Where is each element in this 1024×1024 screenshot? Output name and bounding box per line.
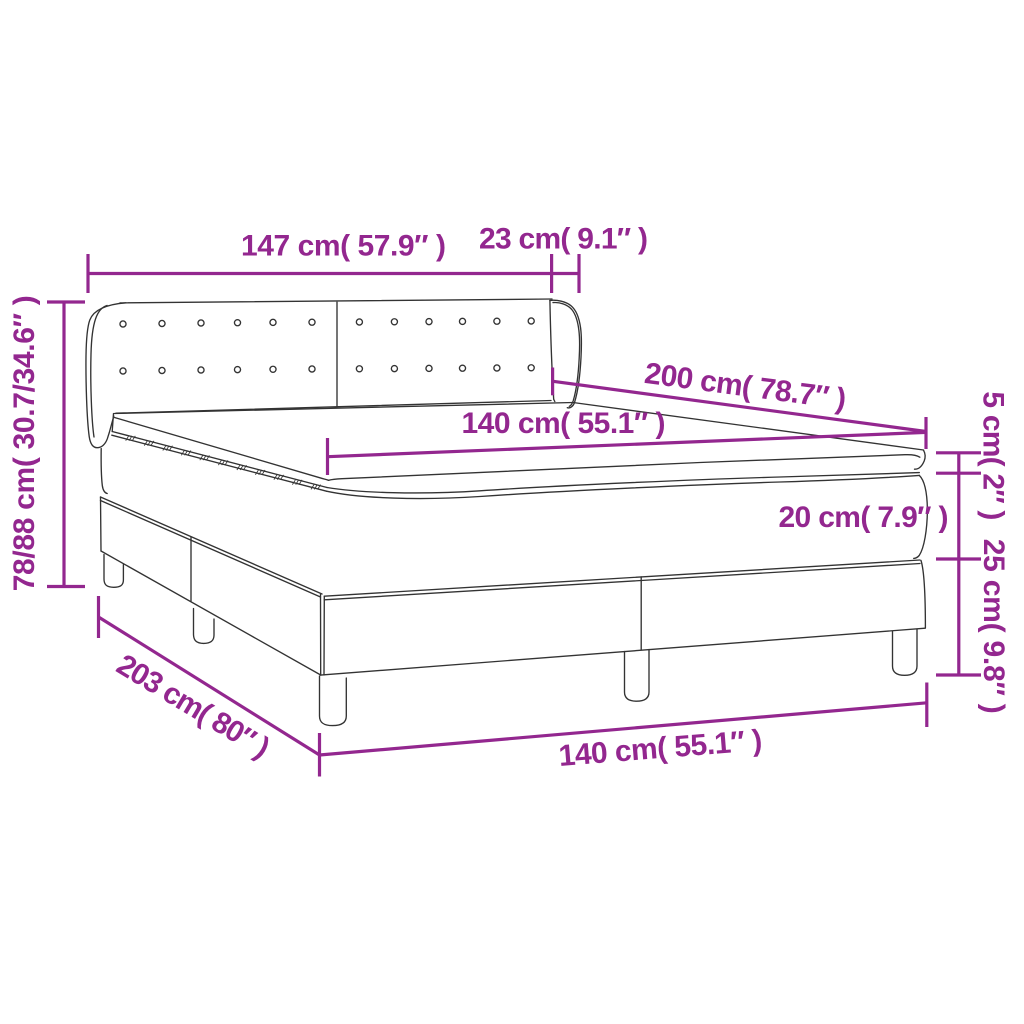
svg-text:147 cm( 57.9″ ): 147 cm( 57.9″ ) xyxy=(241,229,446,262)
svg-text:20 cm( 7.9″ ): 20 cm( 7.9″ ) xyxy=(779,501,949,534)
svg-text:140 cm( 55.1″ ): 140 cm( 55.1″ ) xyxy=(462,407,666,440)
svg-text:23 cm( 9.1″ ): 23 cm( 9.1″ ) xyxy=(479,223,648,256)
svg-text:25 cm( 9.8″ ): 25 cm( 9.8″ ) xyxy=(977,539,1010,714)
svg-text:78/88 cm( 30.7/34.6″ ): 78/88 cm( 30.7/34.6″ ) xyxy=(8,295,41,591)
svg-text:5 cm( 2″ ): 5 cm( 2″ ) xyxy=(977,391,1010,520)
